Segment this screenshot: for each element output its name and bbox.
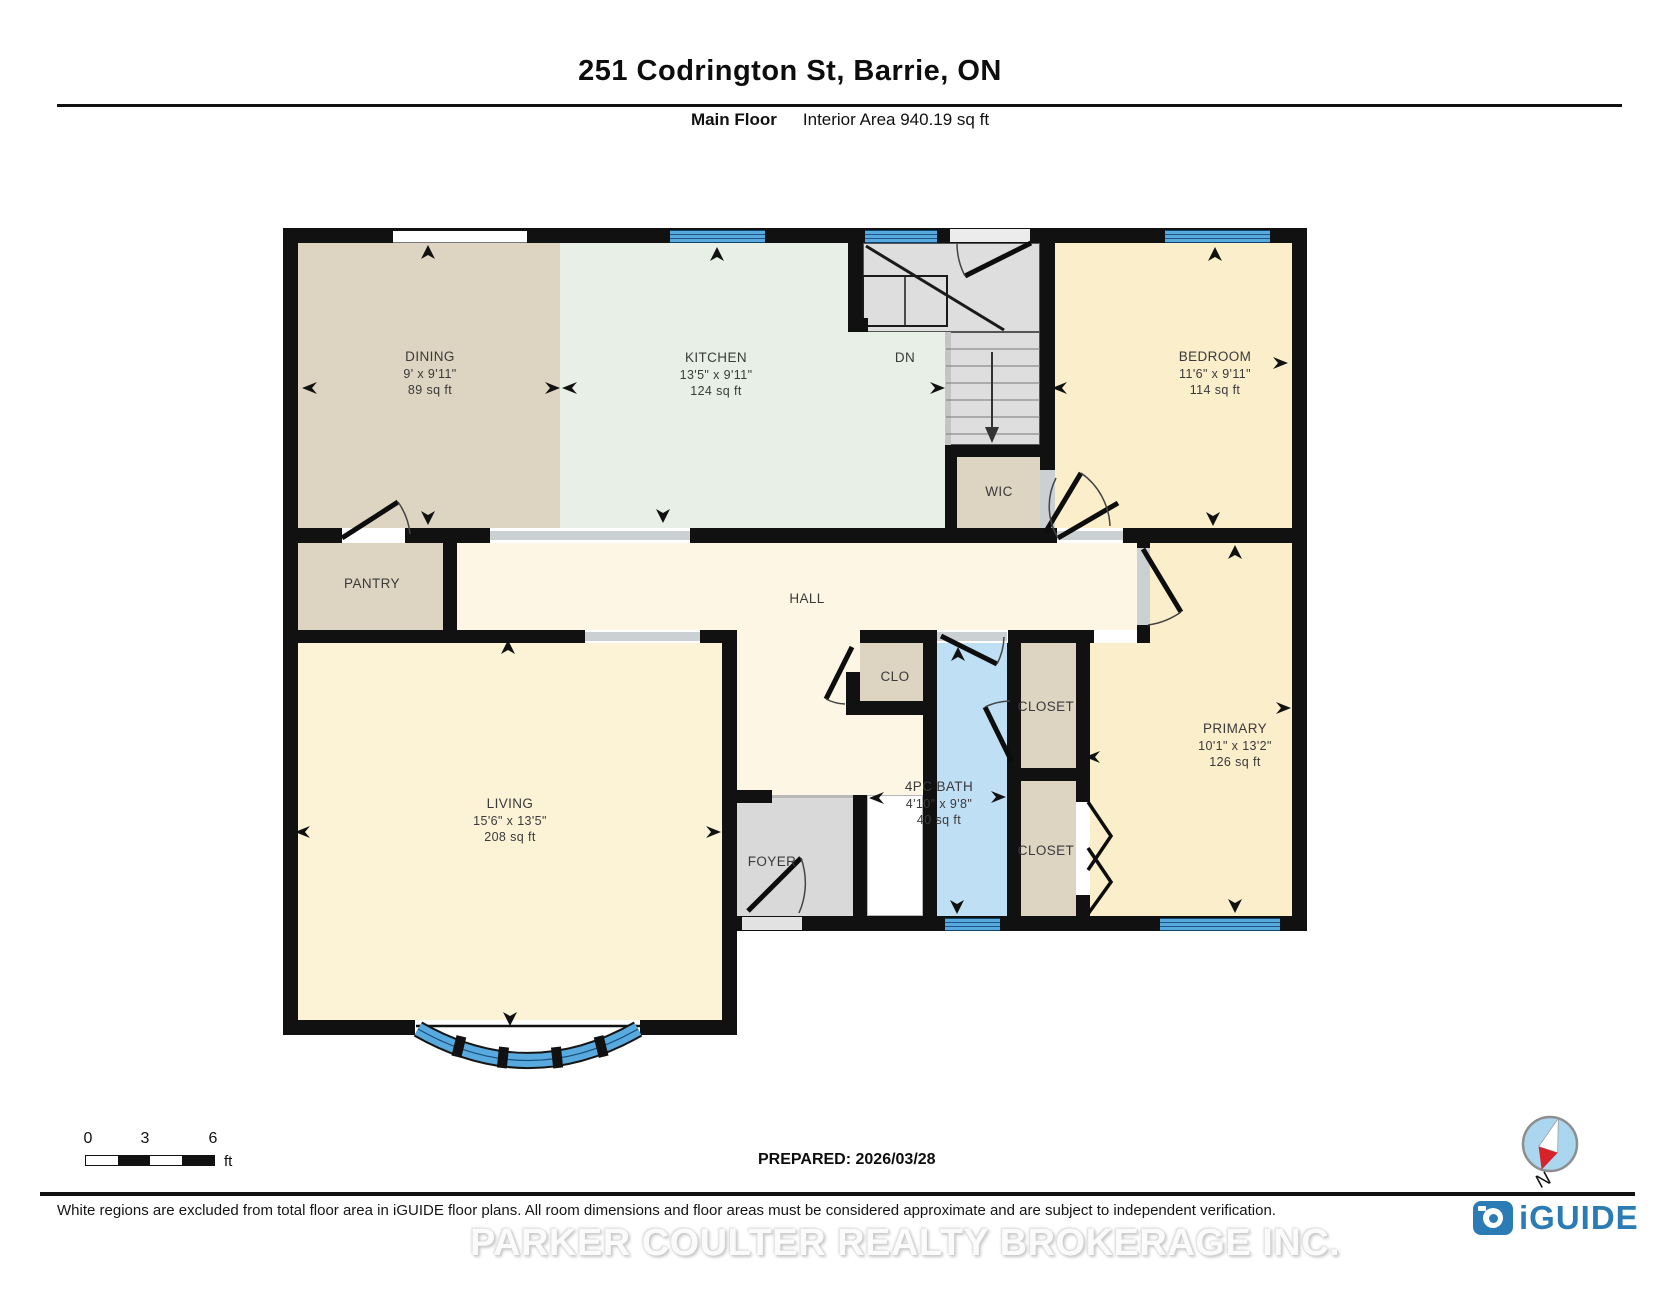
iguide-camera-icon <box>1473 1201 1513 1235</box>
wall-hall-top-b <box>405 528 490 543</box>
wall-kitchen-stairs <box>848 243 863 323</box>
label-bath: 4PC BATH 4'10" x 9'8" 40 sq ft <box>905 778 973 828</box>
compass-north-label: N <box>1533 1168 1555 1194</box>
opening-bedroom-door <box>1057 531 1123 540</box>
opening-kitchen-hall <box>490 531 690 540</box>
opening-front-door <box>742 917 802 930</box>
wall-pantry-right <box>443 543 457 643</box>
window-bedroom <box>1165 230 1270 243</box>
wall-clo-top <box>860 630 937 643</box>
wall-hall-top-a <box>283 528 342 543</box>
label-closet-top: CLOSET <box>1018 698 1074 716</box>
iguide-logo-text: iGUIDE <box>1519 1199 1639 1237</box>
wall-closet-top <box>1008 630 1094 643</box>
wall-bedroom-bottom <box>1123 528 1292 543</box>
room-primary-area-2 <box>1090 643 1150 916</box>
label-foyer: FOYER <box>748 853 797 871</box>
wall-wic-top <box>945 445 1055 457</box>
label-clo: CLO <box>881 668 910 686</box>
scale-tick-3: 3 <box>141 1130 150 1148</box>
opening-entry-door <box>950 229 1030 242</box>
floor-label: Main Floor <box>691 110 777 129</box>
bay-window <box>416 1026 640 1068</box>
window-dining-bay <box>393 228 527 243</box>
wall-closet-bottom-stub-a <box>1076 781 1090 802</box>
label-bedroom: BEDROOM 11'6" x 9'11" 114 sq ft <box>1179 348 1252 398</box>
scale-tick-0: 0 <box>84 1130 93 1148</box>
opening-foyer-line <box>772 795 853 798</box>
opening-wic-door <box>1040 470 1055 528</box>
compass-icon <box>1523 1115 1577 1173</box>
scale-tick-6: 6 <box>209 1130 218 1148</box>
stair-landing-area <box>863 243 1040 332</box>
prepared-date: PREPARED: 2026/03/28 <box>758 1151 936 1169</box>
window-primary <box>1160 918 1280 931</box>
wall-closet-bottom-stub-b <box>1076 895 1090 916</box>
floorplan-page: { "header": { "title": "251 Codrington S… <box>0 0 1680 1299</box>
wall-hall-top-c <box>690 528 947 543</box>
brokerage-watermark: PARKER COULTER REALTY BROKERAGE INC. <box>470 1222 1220 1265</box>
window-bath <box>945 918 1000 931</box>
wall-wic-bottom <box>945 528 1057 543</box>
scale-unit: ft <box>224 1153 232 1170</box>
label-living: LIVING 15'6" x 13'5" 208 sq ft <box>473 795 547 845</box>
footer-divider <box>40 1192 1635 1196</box>
wall-exterior-right <box>1292 228 1307 931</box>
label-dining: DINING 9' x 9'11" 89 sq ft <box>403 348 456 398</box>
label-closet-bottom: CLOSET <box>1018 842 1074 860</box>
room-hall-area <box>457 543 1137 630</box>
opening-hall-living <box>585 632 700 641</box>
wall-living-bottom-a <box>283 1020 415 1035</box>
wall-living-right <box>722 643 737 1035</box>
opening-bath-door <box>937 632 1007 641</box>
label-pantry: PANTRY <box>344 575 400 593</box>
wall-closet-mid <box>1007 768 1090 781</box>
page-title: 251 Codrington St, Barrie, ON <box>0 55 1580 88</box>
label-wic: WIC <box>985 483 1012 501</box>
stair-treads-area <box>945 332 1040 445</box>
wall-hall-bottom-a <box>283 630 585 643</box>
room-bedroom-area <box>1055 243 1292 528</box>
floor-subtitle: Main FloorInterior Area 940.19 sq ft <box>0 110 1680 130</box>
label-primary: PRIMARY 10'1" x 13'2" 126 sq ft <box>1198 720 1272 770</box>
wall-foyer-right <box>853 795 867 916</box>
wall-foyer-top-stub <box>737 790 772 803</box>
label-kitchen: KITCHEN 13'5" x 9'11" 124 sq ft <box>680 349 753 399</box>
label-stairs-dn: DN <box>895 349 915 367</box>
opening-primary-door <box>1137 548 1150 625</box>
interior-area-label: Interior Area 940.19 sq ft <box>803 110 989 129</box>
scale-bar <box>85 1155 215 1166</box>
header-divider <box>57 104 1622 107</box>
window-stairs <box>865 230 937 243</box>
wall-stairs-bedroom-a <box>1040 243 1055 470</box>
wall-hall-bottom-b <box>700 630 737 643</box>
wall-closet-top-right <box>1076 643 1090 768</box>
iguide-logo: iGUIDE <box>1473 1199 1639 1237</box>
disclaimer-text: White regions are excluded from total fl… <box>57 1202 1276 1219</box>
label-hall: HALL <box>789 590 824 608</box>
window-kitchen <box>670 230 765 243</box>
